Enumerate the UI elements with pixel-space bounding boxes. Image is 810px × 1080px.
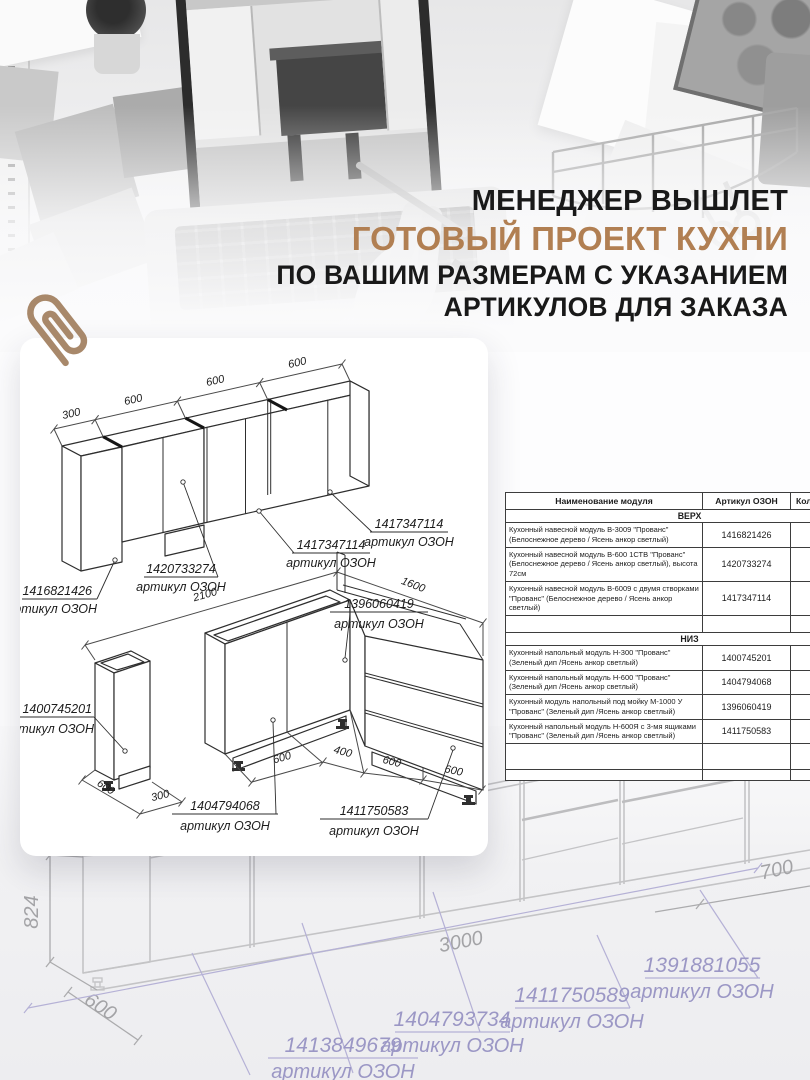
module-name: Кухонный модуль напольный под мойку М-10… [506,695,703,720]
headline-line3: ПО ВАШИМ РАЗМЕРАМ С УКАЗАНИЕМ [276,259,788,291]
module-name: Кухонный навесной модуль В-3009 "Прованс… [506,523,703,548]
table-row: Кухонный навесной модуль В-3009 "Прованс… [506,523,810,548]
wm-article-caption: артикул ОЗОН [380,1035,524,1057]
module-qty [791,719,810,744]
plan-article-caption: артикул ОЗОН [364,535,455,549]
module-article: 1420733274 [703,547,791,581]
plan-article-caption: артикул ОЗОН [334,617,425,631]
plan-article-caption: артикул ОЗОН [286,556,377,570]
wm-dim-824: 824 [21,895,43,928]
module-name: Кухонный напольный модуль Н-600Я с 3-мя … [506,719,703,744]
plan-article: 1400745201 [22,702,92,716]
wm-article-caption: артикул ОЗОН [630,981,774,1003]
wm-article-caption: артикул ОЗОН [500,1011,644,1033]
col-header-module: Наименование модуля [506,493,703,510]
section-label: НИЗ [506,633,810,646]
table-empty-row [506,616,810,633]
lower-dim: 400 [332,744,354,761]
spec-table: Наименование модуля Артикул ОЗОН Кол-во … [505,492,810,781]
wm-article: 1404793734 [394,1008,511,1031]
module-qty [791,547,810,581]
headline-line2-accent: ГОТОВЫЙ ПРОЕКТ КУХНИ [276,219,788,259]
plan-article-caption: артикул ОЗОН [20,722,95,736]
upper-dim: 600 [123,392,144,408]
plan-article-caption: артикул ОЗОН [180,819,271,833]
module-article: 1400745201 [703,646,791,671]
upper-dim: 300 [61,406,82,422]
upper-dim: 600 [205,373,226,389]
kitchen-plan-drawing: 300 600 600 600 1416821426 артикул ОЗОН … [20,338,488,856]
table-row: Кухонный напольный модуль Н-600Я с 3-мя … [506,719,810,744]
section-label: ВЕРХ [506,510,810,523]
plan-article-caption: артикул ОЗОН [20,602,98,616]
plan-article: 1416821426 [22,584,92,598]
table-row: Кухонный напольный модуль Н-600 "Прованс… [506,670,810,695]
table-row: Кухонный модуль напольный под мойку М-10… [506,695,810,720]
section-row-niz: НИЗ [506,633,810,646]
module-qty [791,646,810,671]
module-qty [791,695,810,720]
upper-dim: 600 [287,355,308,371]
module-qty [791,581,810,615]
plan-article: 1417347114 [297,538,366,552]
section-row-verh: ВЕРХ [506,510,810,523]
table-empty-row [506,744,810,770]
plan-article: 1420733274 [146,562,216,576]
module-article: 1396060419 [703,695,791,720]
wm-article: 1411750589 [514,984,630,1007]
module-name: Кухонный напольный модуль Н-600 "Прованс… [506,670,703,695]
plan-article: 1417347114 [375,517,444,531]
wm-article-caption: артикул ОЗОН [271,1061,415,1080]
module-article: 1416821426 [703,523,791,548]
module-article: 1417347114 [703,581,791,615]
module-article: 1404794068 [703,670,791,695]
plan-article-caption: артикул ОЗОН [329,824,420,838]
plan-article: 1396060419 [344,597,414,611]
wm-dim-700: 700 [758,856,795,884]
headline: МЕНЕДЖЕР ВЫШЛЕТ ГОТОВЫЙ ПРОЕКТ КУХНИ ПО … [276,183,788,324]
wm-dim-3000: 3000 [437,927,485,957]
cab300-dim: 300 [150,788,172,804]
lower-dim-1600: 1600 [399,575,427,595]
module-name: Кухонный навесной модуль В-6009 с двумя … [506,581,703,615]
headline-line4: АРТИКУЛОВ ДЛЯ ЗАКАЗА [276,291,788,324]
wm-article: 1391881055 [644,954,761,977]
col-header-qty: Кол-во [791,493,810,510]
table-empty-row [506,770,810,781]
plan-card: 300 600 600 600 1416821426 артикул ОЗОН … [20,338,488,856]
col-header-article: Артикул ОЗОН [703,493,791,510]
table-row: Кухонный напольный модуль Н-300 "Прованс… [506,646,810,671]
module-qty [791,670,810,695]
plan-article: 1411750583 [340,804,409,818]
page: МЕНЕДЖЕР ВЫШЛЕТ ГОТОВЫЙ ПРОЕКТ КУХНИ ПО … [0,0,810,1080]
plan-article: 1404794068 [190,799,260,813]
module-name: Кухонный напольный модуль Н-300 "Прованс… [506,646,703,671]
headline-line1: МЕНЕДЖЕР ВЫШЛЕТ [276,183,788,219]
table-row: Кухонный навесной модуль В-6009 с двумя … [506,581,810,615]
module-name: Кухонный навесной модуль В-600 1СТВ "Про… [506,547,703,581]
table-header-row: Наименование модуля Артикул ОЗОН Кол-во [506,493,810,510]
module-qty [791,523,810,548]
table-row: Кухонный навесной модуль В-600 1СТВ "Про… [506,547,810,581]
module-article: 1411750583 [703,719,791,744]
